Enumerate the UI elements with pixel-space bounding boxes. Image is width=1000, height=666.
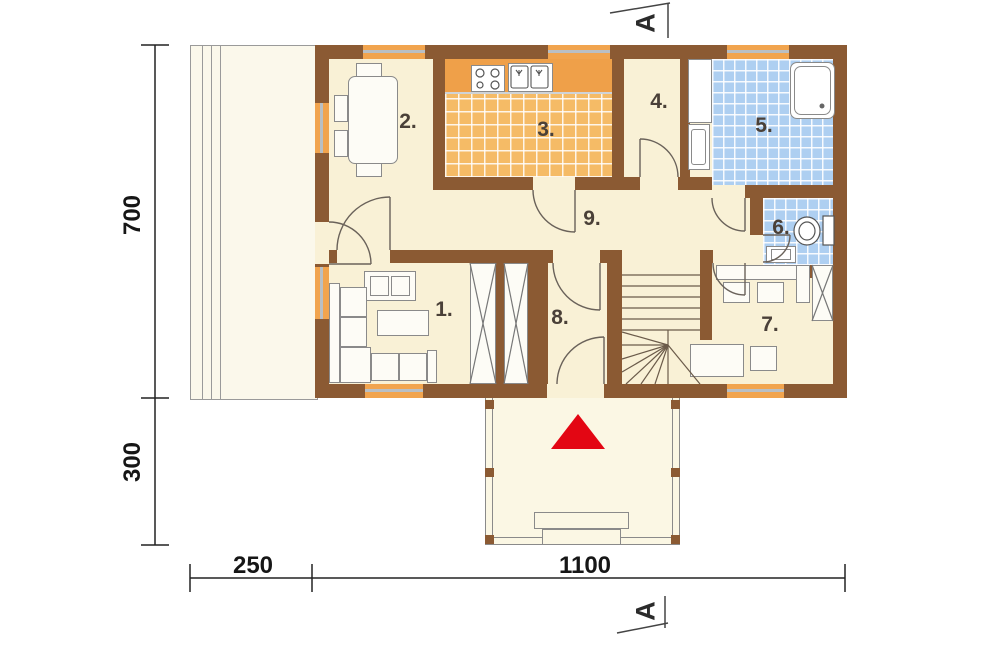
wardrobe-icon [504, 263, 528, 384]
porch-post [485, 400, 494, 409]
window-glass [727, 50, 789, 53]
terrace-deck-line [220, 46, 221, 399]
dimension-1100: 1100 [559, 552, 611, 580]
section-marker-top: A [631, 13, 662, 33]
wardrobe-icon [470, 263, 496, 384]
window-glass [320, 267, 323, 319]
porch-post [671, 400, 680, 409]
small-chair-icon [750, 346, 777, 371]
wall-hall-living-right [390, 250, 462, 263]
wardrobe-icon [812, 265, 833, 321]
porch-post [671, 535, 680, 544]
room-2-label: 2. [399, 110, 417, 134]
room-9-label: 9. [583, 207, 601, 231]
sofa-back-icon [329, 283, 340, 383]
dimension-700: 700 [119, 195, 147, 235]
wc-basin-bowl-icon [771, 249, 791, 260]
window-living-bottom [365, 384, 423, 398]
room-6-label: 6. [772, 216, 790, 240]
floor-plan: 1. 2. 3. 4. 5. 6. 7. 8. 9. 700 300 250 1… [0, 0, 1000, 666]
dining-chair-icon [356, 163, 382, 177]
wall-room4-bottom-left [612, 177, 640, 190]
wall-outer-right [833, 45, 847, 398]
window-glass [548, 50, 610, 53]
room-7-label: 7. [761, 313, 779, 337]
armchair-cushion-icon [391, 276, 410, 296]
porch-post [671, 468, 680, 477]
terrace-door-opening [315, 222, 329, 264]
wall-closet-divider [496, 263, 504, 384]
desk-chair-icon [723, 282, 750, 303]
room-3-label: 3. [537, 118, 555, 142]
terrace-deck-line [202, 46, 203, 399]
porch-post [485, 468, 494, 477]
washbasin-bowl-icon [691, 129, 706, 165]
sofa-seat-icon [371, 353, 399, 381]
dimension-250: 250 [233, 552, 273, 580]
dining-chair-icon [334, 130, 348, 157]
section-marker-bottom: A [631, 601, 662, 621]
entrance-door-opening [547, 384, 604, 398]
desk-chair-icon [757, 282, 784, 303]
room-1-label: 1. [435, 298, 453, 322]
dimension-300: 300 [119, 442, 147, 482]
wall-hall-living-left [329, 250, 337, 263]
window-glass [320, 103, 323, 153]
wall-dining-kitchen [433, 59, 445, 190]
sofa-seat-icon [340, 317, 367, 347]
window-bathroom [727, 45, 789, 59]
desk-icon [716, 265, 798, 280]
sofa-seat-icon [340, 287, 367, 317]
armchair-cushion-icon [370, 276, 389, 296]
small-desk-icon [690, 344, 744, 377]
sofa-seat-icon [399, 353, 427, 381]
wall-room4-bottom-right [678, 177, 712, 190]
window-glass [363, 50, 425, 53]
porch-step [534, 512, 629, 529]
window-glass [365, 389, 423, 392]
terrace-deck-line [211, 46, 212, 399]
installation-shaft [688, 59, 712, 123]
desk-side-icon [796, 265, 810, 303]
window-room7-bottom [727, 384, 784, 398]
coffee-table-icon [377, 310, 429, 336]
stove-icon [471, 65, 505, 92]
wall-room8-top-right [600, 250, 622, 263]
bathtub-inner-icon [794, 66, 831, 115]
sofa-corner-icon [340, 347, 371, 383]
wall-wc-left [750, 185, 763, 235]
room-5-label: 5. [755, 114, 773, 138]
kitchen-sink-icon [508, 63, 553, 92]
window-dining [363, 45, 425, 59]
porch-step [542, 529, 621, 545]
window-kitchen [548, 45, 610, 59]
wall-kitchen-bottom-left [433, 177, 533, 190]
room-8-label: 8. [551, 306, 569, 330]
wall-room8-stairs [607, 263, 622, 384]
dining-chair-icon [334, 95, 348, 122]
terrace [190, 45, 318, 400]
wall-stairs-room7 [700, 250, 712, 340]
room-4-label: 4. [650, 90, 668, 114]
dining-chair-icon [356, 63, 382, 77]
window-dining-side [315, 103, 329, 153]
window-glass [727, 389, 784, 392]
wall-kitchen-bottom-right [575, 177, 612, 190]
dining-table-icon [348, 76, 398, 164]
wall-closet-right [528, 263, 548, 384]
window-living-side [315, 267, 329, 319]
wall-closet-top [455, 250, 553, 263]
wall-kitchen-room4 [612, 59, 624, 190]
porch-post [485, 535, 494, 544]
sofa-armrest-icon [427, 350, 437, 383]
